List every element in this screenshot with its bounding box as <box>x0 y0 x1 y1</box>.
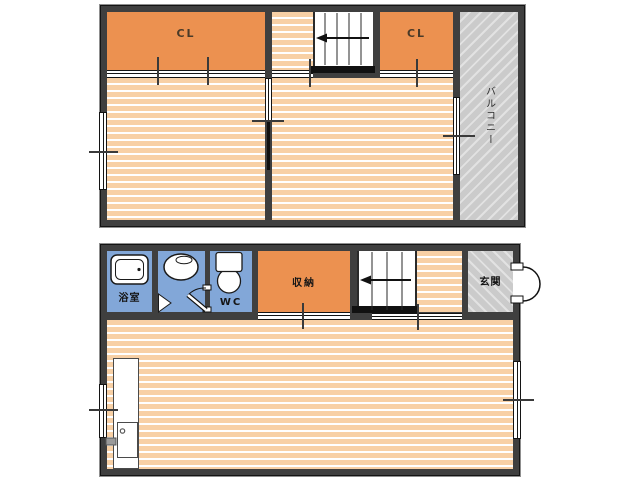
upper-staircase <box>313 12 373 66</box>
floorplan-canvas: CL CL バルコニー 浴室 WC 収納 玄関 <box>0 0 640 480</box>
upper-closet-left-sliding-door <box>107 70 265 78</box>
storage-sliding-door <box>258 312 350 320</box>
lower-window-right <box>513 361 521 439</box>
upper-closet-right-label: CL <box>380 22 453 44</box>
main-room <box>107 320 513 469</box>
lower-wall-bath <box>152 251 158 295</box>
lower-staircase <box>357 251 417 311</box>
upper-room-left <box>107 78 265 220</box>
upper-wall-closet-left <box>265 12 272 70</box>
bathroom-label: 浴室 <box>107 287 152 305</box>
upper-stair-edge <box>311 66 375 73</box>
lower-wall-wc-left-upper <box>205 251 210 290</box>
upper-balcony-sliding-window <box>453 97 460 175</box>
upper-room-divider-door-pocket <box>267 122 270 170</box>
wc-label: WC <box>210 294 252 310</box>
lower-stair-edge <box>352 306 417 313</box>
upper-window-left <box>99 112 107 190</box>
upper-room-right <box>272 78 453 220</box>
kitchen-sink <box>117 422 138 458</box>
washroom-area <box>158 251 205 312</box>
upper-wall-stairs-right <box>373 12 380 70</box>
upper-hall-sliding-door <box>272 70 313 78</box>
lower-hall-strip <box>417 251 462 318</box>
hall-sliding-door <box>372 313 462 320</box>
upper-closet-left-label: CL <box>107 22 265 44</box>
upper-closet-right-sliding-door <box>380 70 453 78</box>
lower-window-left <box>99 384 107 438</box>
entrance-label: 玄関 <box>468 272 513 288</box>
lower-wall-storage-right <box>350 251 357 312</box>
balcony-label: バルコニー <box>460 12 518 220</box>
upper-room-divider-door <box>265 78 272 122</box>
upper-hall-strip <box>272 12 313 70</box>
storage-label: 収納 <box>258 272 350 290</box>
